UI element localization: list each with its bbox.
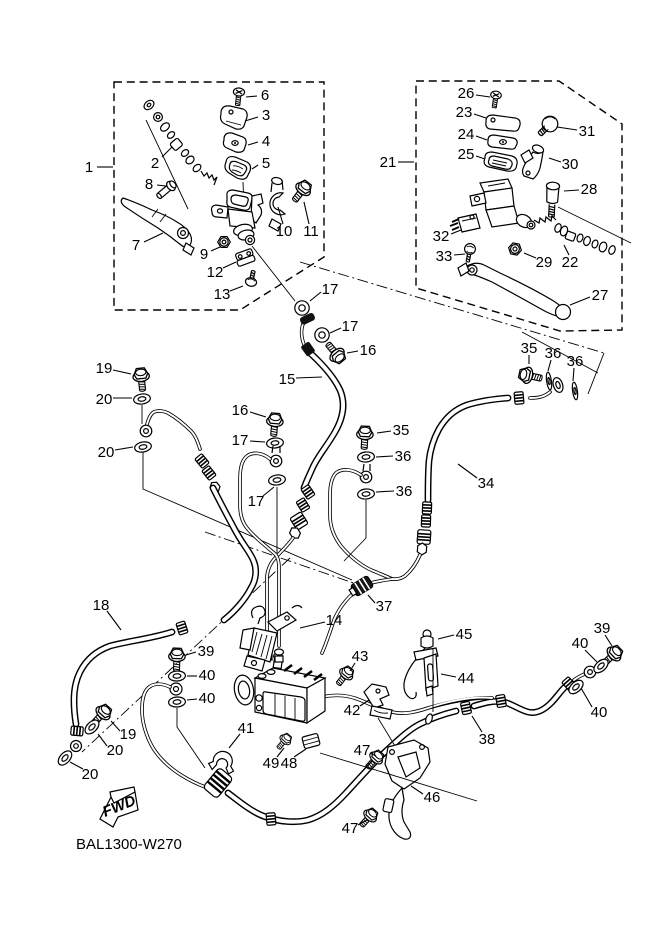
svg-text:40: 40 [199,690,216,707]
svg-text:4: 4 [262,133,270,150]
svg-text:37: 37 [376,598,393,615]
svg-text:39: 39 [198,643,215,660]
svg-text:31: 31 [579,123,596,140]
svg-text:44: 44 [458,670,475,687]
svg-text:43: 43 [352,648,369,665]
svg-text:38: 38 [479,731,496,748]
svg-text:48: 48 [281,755,298,772]
svg-text:28: 28 [581,181,598,198]
svg-text:27: 27 [592,287,609,304]
svg-text:47: 47 [342,820,359,837]
svg-text:36: 36 [545,345,562,362]
svg-text:42: 42 [344,702,361,719]
svg-text:6: 6 [261,87,269,104]
svg-text:5: 5 [262,155,270,172]
svg-text:20: 20 [107,742,124,759]
svg-text:32: 32 [433,228,450,245]
svg-text:36: 36 [395,448,412,465]
svg-text:25: 25 [458,146,475,163]
svg-text:30: 30 [562,156,579,173]
svg-text:2: 2 [151,155,159,172]
svg-text:13: 13 [214,286,231,303]
svg-text:33: 33 [436,248,453,265]
svg-text:29: 29 [536,254,553,271]
svg-text:24: 24 [458,126,475,143]
svg-text:26: 26 [458,85,475,102]
svg-text:34: 34 [478,475,495,492]
svg-text:17: 17 [322,281,339,298]
svg-text:23: 23 [456,104,473,121]
svg-text:46: 46 [424,789,441,806]
svg-text:35: 35 [521,340,538,357]
svg-text:22: 22 [562,254,579,271]
svg-text:11: 11 [303,223,319,240]
svg-text:7: 7 [132,237,140,254]
svg-text:40: 40 [591,704,608,721]
svg-text:45: 45 [456,626,473,643]
svg-text:17: 17 [248,493,265,510]
svg-text:21: 21 [380,154,397,171]
svg-text:20: 20 [98,444,115,461]
svg-text:20: 20 [82,766,99,783]
svg-text:17: 17 [232,432,249,449]
svg-text:15: 15 [279,371,296,388]
svg-text:49: 49 [263,755,280,772]
svg-text:19: 19 [120,726,137,743]
svg-text:BAL1300-W270: BAL1300-W270 [76,836,182,853]
svg-text:16: 16 [360,342,377,359]
svg-text:35: 35 [393,422,410,439]
svg-text:8: 8 [145,176,153,193]
svg-text:1: 1 [85,159,93,176]
svg-text:14: 14 [326,612,343,629]
svg-text:12: 12 [207,264,224,281]
svg-text:40: 40 [199,667,216,684]
svg-text:17: 17 [342,318,359,335]
svg-text:9: 9 [200,246,208,263]
svg-text:47: 47 [354,742,371,759]
svg-text:36: 36 [567,353,584,370]
svg-text:20: 20 [96,391,113,408]
svg-text:39: 39 [594,620,611,637]
svg-text:19: 19 [96,360,113,377]
svg-text:36: 36 [396,483,413,500]
svg-text:3: 3 [262,107,270,124]
svg-text:10: 10 [276,223,293,240]
svg-text:40: 40 [572,635,589,652]
svg-text:16: 16 [232,402,249,419]
